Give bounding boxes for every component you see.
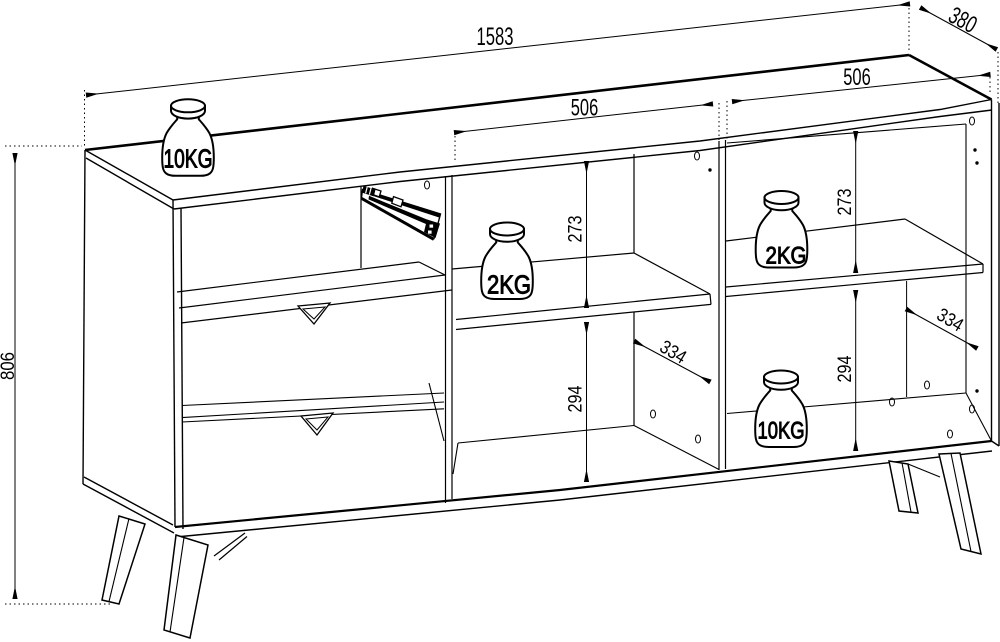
svg-text:294: 294 xyxy=(566,385,587,412)
svg-text:806: 806 xyxy=(0,352,19,380)
svg-text:380: 380 xyxy=(944,2,981,39)
svg-text:1583: 1583 xyxy=(477,23,514,51)
svg-text:506: 506 xyxy=(571,95,599,122)
svg-text:273: 273 xyxy=(835,189,856,216)
svg-text:334: 334 xyxy=(656,337,690,369)
svg-text:334: 334 xyxy=(933,305,967,337)
svg-text:294: 294 xyxy=(835,355,856,382)
svg-text:2KG: 2KG xyxy=(487,270,531,300)
svg-text:10KG: 10KG xyxy=(758,418,805,445)
svg-text:506: 506 xyxy=(843,64,871,91)
svg-text:10KG: 10KG xyxy=(164,144,213,174)
svg-text:273: 273 xyxy=(566,216,587,243)
svg-text:2KG: 2KG xyxy=(766,243,807,270)
